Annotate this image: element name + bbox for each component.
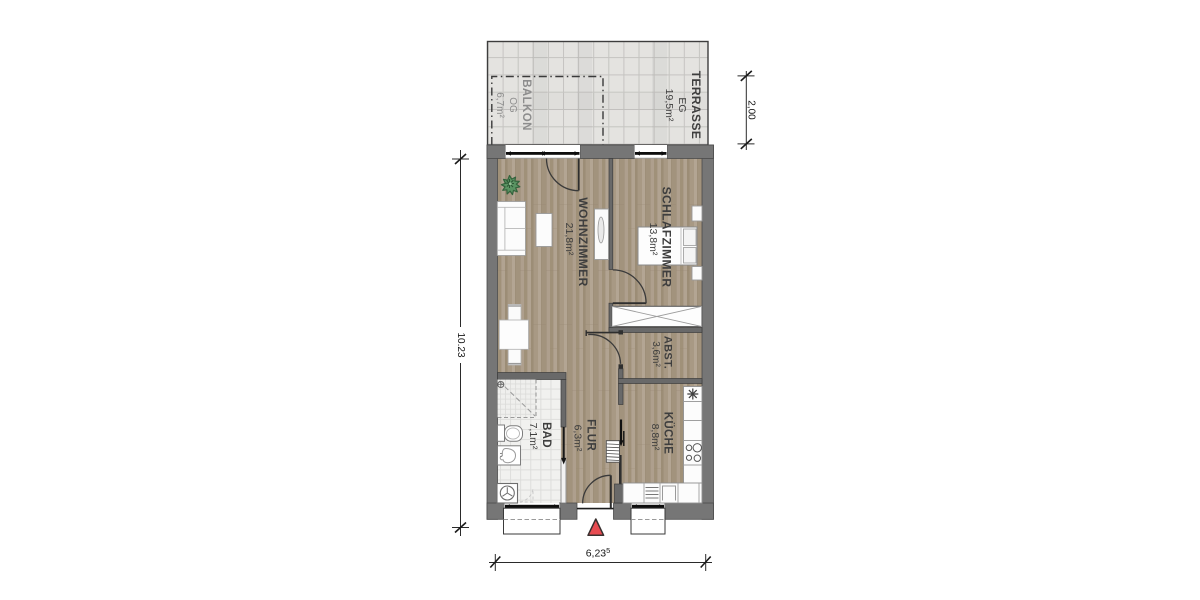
svg-text:10.23: 10.23 (455, 332, 466, 357)
svg-text:EG: EG (676, 97, 688, 112)
svg-text:ABST.: ABST. (662, 336, 674, 369)
svg-text:13,8m²: 13,8m² (647, 223, 659, 256)
svg-text:SCHLAFZIMMER: SCHLAFZIMMER (660, 187, 674, 288)
svg-text:3,6m²: 3,6m² (650, 341, 661, 367)
svg-text:WOHNZIMMER: WOHNZIMMER (576, 197, 590, 286)
svg-text:2,00: 2,00 (746, 100, 757, 120)
svg-text:19,5m²: 19,5m² (663, 89, 675, 122)
svg-text:8,8m²: 8,8m² (649, 424, 661, 451)
svg-text:OG: OG (507, 97, 518, 113)
svg-text:6,235: 6,235 (586, 546, 611, 560)
svg-text:7,1m²: 7,1m² (527, 423, 539, 450)
svg-text:KÜCHE: KÜCHE (662, 412, 675, 454)
svg-text:21,8m²: 21,8m² (563, 223, 575, 256)
svg-text:6,7m²: 6,7m² (494, 92, 505, 118)
svg-text:TERRASSE: TERRASSE (689, 71, 703, 140)
svg-text:6,3m²: 6,3m² (572, 425, 584, 452)
svg-text:BALKON: BALKON (520, 79, 532, 131)
svg-text:BAD: BAD (540, 422, 552, 448)
svg-text:FLUR: FLUR (585, 419, 597, 451)
